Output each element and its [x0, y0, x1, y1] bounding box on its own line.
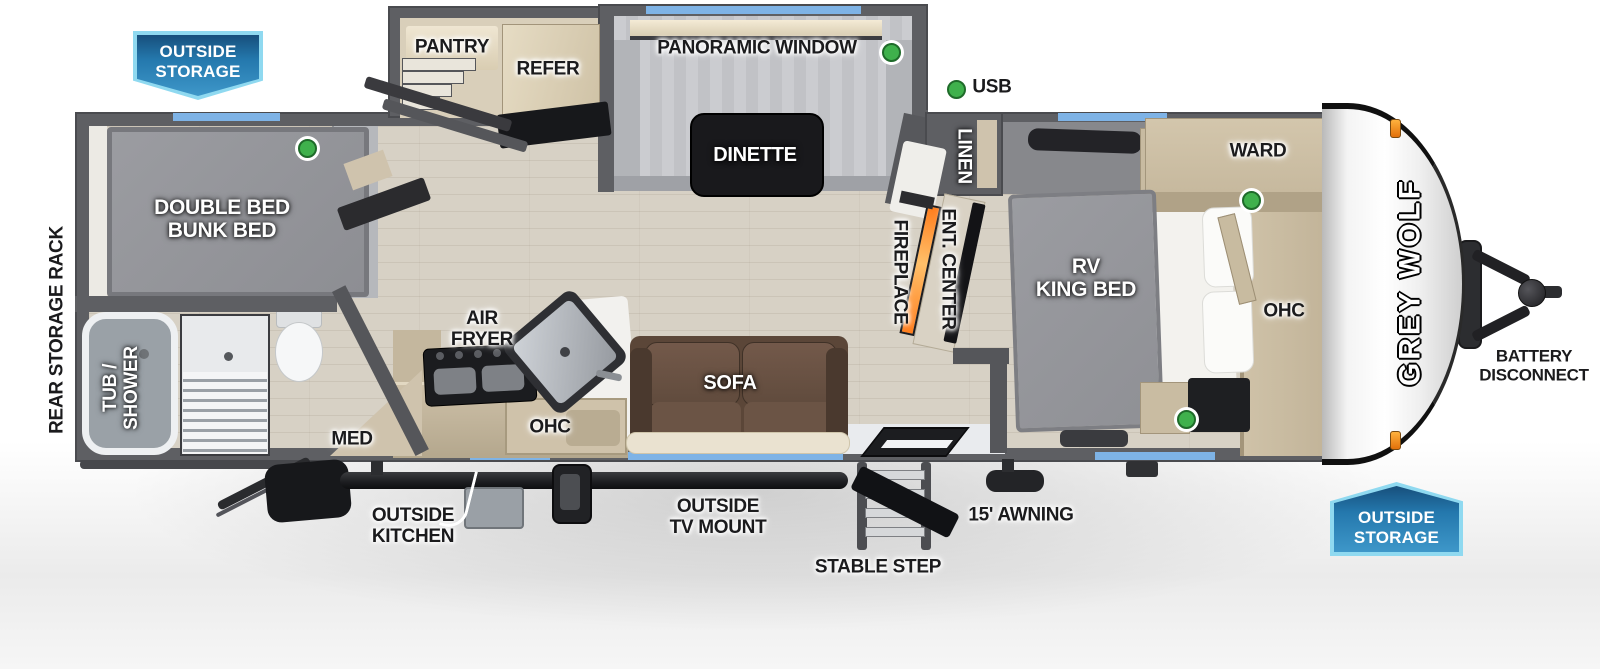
label-sofa: SOFA	[703, 372, 756, 394]
window-strip-bunk	[173, 113, 280, 121]
label-stable-step: STABLE STEP	[815, 558, 941, 579]
shower-door-slats	[183, 372, 267, 454]
label-double-bunk: DOUBLE BED BUNK BED	[154, 196, 290, 242]
hitch-coupler-knob	[1518, 279, 1546, 307]
label-outside-kitchen: OUTSIDE KITCHEN	[372, 506, 454, 548]
label-rv-king-bed: RV KING BED	[1036, 255, 1136, 301]
label-rear-storage-rack: REAR STORAGE RACK	[48, 226, 69, 434]
label-awning: 15' AWNING	[968, 506, 1073, 527]
label-air-fryer: AIR FRYER	[451, 309, 513, 351]
sink-drain	[560, 347, 570, 357]
usb-led-dot	[947, 80, 966, 99]
pantry-step-1	[402, 58, 476, 71]
label-linen: LINEN	[953, 128, 974, 184]
bath-dividing-wall	[75, 296, 337, 312]
label-ohc-kitchen: OHC	[529, 418, 570, 439]
entry-step-plate	[881, 440, 953, 448]
label-refer: REFER	[517, 60, 580, 81]
outside-kitchen-box	[464, 487, 524, 529]
clearance-light-top	[1390, 119, 1401, 138]
label-tub-shower: TUB / SHOWER	[101, 346, 143, 430]
label-battery-disconnect: BATTERY DISCONNECT	[1479, 347, 1588, 384]
kitchen-ohc-inset	[566, 410, 620, 446]
awning-arm-right	[986, 470, 1044, 492]
label-fireplace: FIREPLACE	[889, 220, 910, 325]
stabilizer-jack	[1126, 461, 1158, 477]
label-usb: USB	[972, 78, 1011, 99]
sofa-armrest-left	[630, 348, 652, 440]
label-panoramic-window: PANORAMIC WINDOW	[657, 39, 857, 60]
label-ent-center: ENT. CENTER	[937, 208, 958, 329]
outside-storage-badge-top: OUTSIDE STORAGE	[133, 31, 263, 100]
step-rung-4	[865, 527, 925, 537]
stove-knob-3	[474, 350, 482, 358]
dinette-bench-left	[614, 40, 640, 190]
awning-mount-stub	[371, 461, 383, 475]
label-dinette: DINETTE	[713, 144, 796, 166]
led-dot-bedroom	[1177, 410, 1196, 429]
bedroom-head-shelf	[1028, 128, 1143, 154]
outside-storage-badge-bottom: OUTSIDE STORAGE	[1330, 482, 1463, 556]
sofa-armrest-right	[826, 348, 848, 440]
label-ward: WARD	[1230, 142, 1287, 163]
led-dot-wardrobe	[1242, 191, 1261, 210]
window-strip-dinette-slide	[646, 6, 861, 14]
banner-text: OUTSIDE STORAGE	[1330, 508, 1463, 547]
clearance-light-bottom	[1390, 431, 1401, 450]
toilet-bowl	[275, 322, 323, 382]
window-strip-bedroom-bottom	[1095, 452, 1215, 460]
linen-shelf-panel	[977, 120, 997, 188]
banner-text: OUTSIDE STORAGE	[133, 42, 263, 81]
stove-grate-left	[433, 367, 476, 395]
awning-arm-stub	[1002, 459, 1014, 472]
pantry-step-2	[402, 71, 464, 84]
label-ohc-bedroom: OHC	[1263, 302, 1304, 323]
label-outside-tv-mount: OUTSIDE TV MOUNT	[670, 497, 767, 539]
led-dot-dinette	[882, 43, 901, 62]
outside-tv-bracket-inner	[560, 474, 580, 510]
rear-entry-step	[264, 458, 353, 523]
stove-knob-1	[436, 352, 444, 360]
bedroom-bench	[1188, 378, 1250, 432]
bedroom-half-wall-v	[990, 348, 1007, 453]
floorplan-canvas: OUTSIDE STORAGE	[0, 0, 1600, 669]
stove-knob-2	[455, 351, 463, 359]
label-med: MED	[331, 430, 372, 451]
awning-rail	[340, 472, 848, 489]
sofa-bolster	[626, 432, 850, 454]
led-dot-bunk	[298, 139, 317, 158]
bunk-wall-trim	[89, 126, 107, 302]
bedroom-foot-shelf	[1060, 430, 1128, 447]
brand-logo: GREY WOLF	[1394, 178, 1427, 386]
shower-drain	[224, 352, 233, 361]
label-pantry: PANTRY	[415, 38, 489, 59]
